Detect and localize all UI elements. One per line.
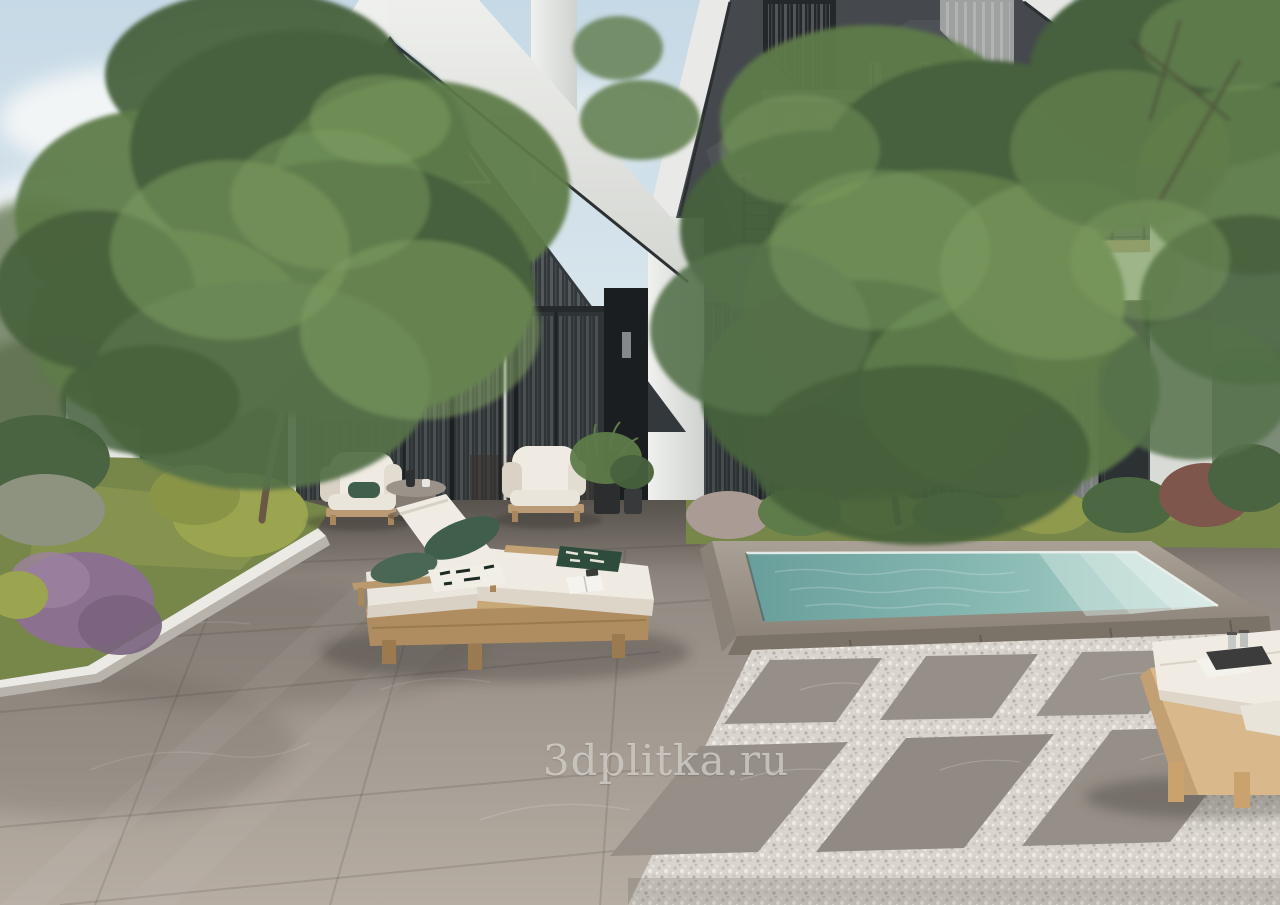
drinking-glass (1240, 632, 1248, 647)
foliage-blob (750, 365, 1090, 545)
plant-pot (624, 488, 642, 514)
chair-leg (330, 515, 336, 525)
wall-sconce (622, 332, 631, 358)
drinking-glass (1228, 634, 1236, 649)
daybed-leg (382, 640, 396, 664)
bush-purple (78, 595, 162, 655)
daybed-leg (612, 634, 625, 658)
chair-leg (574, 511, 580, 522)
glass-rim (1239, 630, 1249, 633)
foliage-blob (580, 80, 700, 160)
bush-blossom (686, 491, 770, 539)
table-cup (422, 479, 430, 487)
table-top (386, 479, 446, 497)
foliage-blob (1070, 200, 1230, 320)
table-vase (406, 470, 415, 487)
chair-shadow (494, 511, 602, 529)
daybed-leg (1234, 772, 1250, 808)
foliage-blob (573, 16, 663, 80)
chair-seat-cushion (510, 490, 580, 506)
green-lumbar-pillow (348, 482, 380, 498)
foliage-blob (720, 95, 880, 205)
small-object (586, 568, 599, 576)
daybed-leg (1168, 762, 1184, 802)
chair-leg (512, 511, 518, 522)
foliage-blob (310, 75, 450, 165)
rail-post (358, 588, 364, 606)
plant-foliage (610, 455, 654, 489)
daybed-leg (468, 644, 482, 670)
gravel-shadow (628, 878, 1280, 905)
architectural-render: 3dplitka.ru (0, 0, 1280, 905)
foliage-blob (60, 345, 240, 455)
bush-green (1082, 477, 1174, 533)
glass-rim (1227, 632, 1237, 635)
